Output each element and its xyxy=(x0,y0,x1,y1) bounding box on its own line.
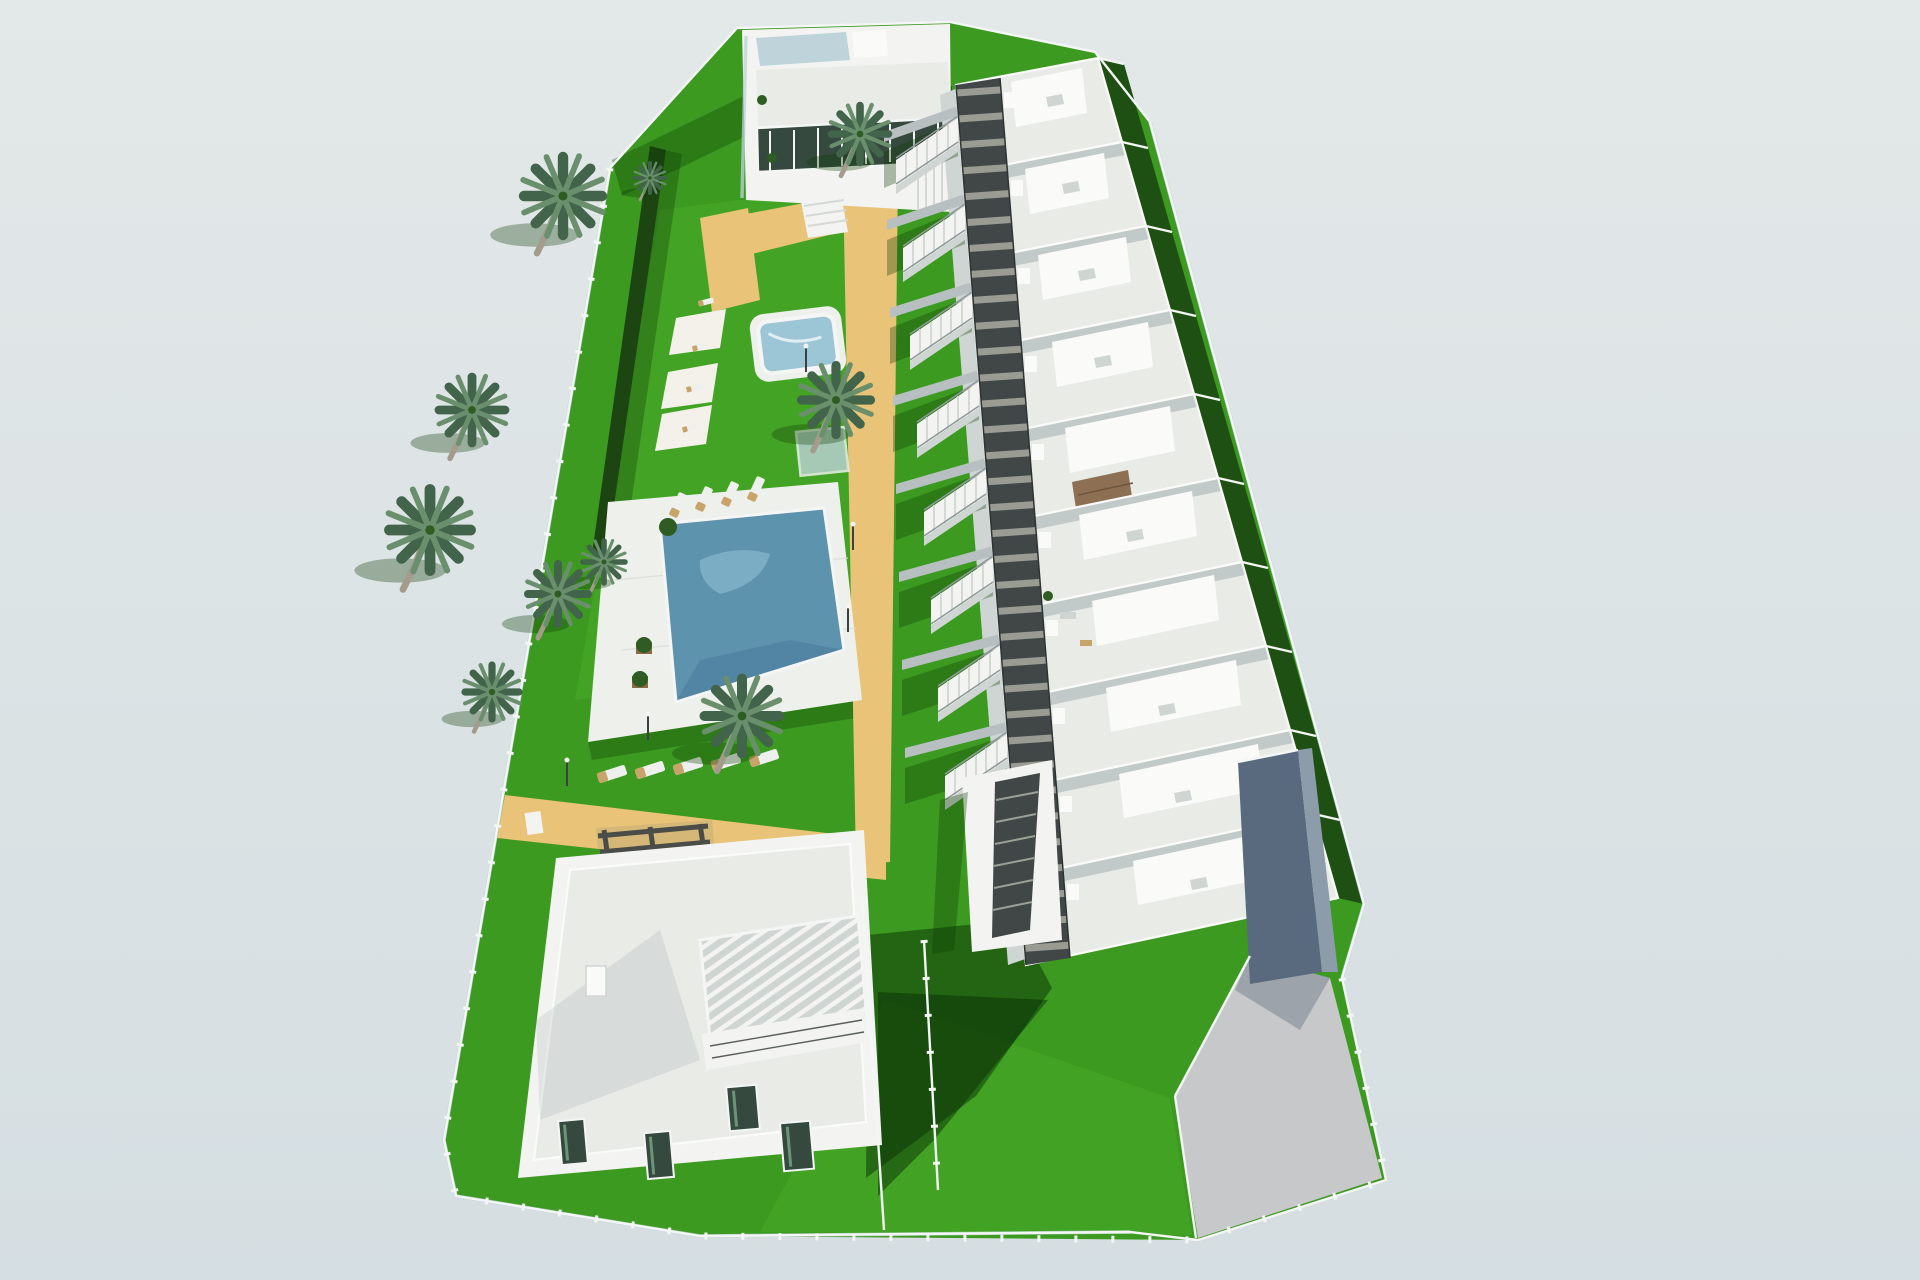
roof-access-box xyxy=(586,966,606,996)
stair-exit-box xyxy=(1018,268,1030,284)
terrace-plant xyxy=(1043,591,1053,601)
stair-exit-box xyxy=(1004,92,1016,108)
planter-plant xyxy=(636,637,652,653)
window xyxy=(558,1119,588,1165)
stair-exit-box xyxy=(1046,620,1058,636)
window xyxy=(726,1085,760,1131)
window xyxy=(644,1131,674,1179)
stair-exit-box xyxy=(1039,532,1051,548)
kids-pool-water xyxy=(757,314,839,375)
clubhouse-entry-steps xyxy=(800,190,848,238)
terrace-table xyxy=(1060,612,1076,619)
render-canvas xyxy=(0,0,1920,1280)
terrace-plant xyxy=(767,153,777,163)
stair-exit-box xyxy=(1053,708,1065,724)
stair-exit-box xyxy=(1060,796,1072,812)
clubhouse-roof-deck xyxy=(852,30,888,58)
corner-plant xyxy=(659,518,677,536)
stair-exit-box xyxy=(1032,444,1044,460)
stair-exit-box xyxy=(1067,884,1079,900)
clubhouse-glass-roof xyxy=(756,32,850,66)
terrace-lounger xyxy=(1080,640,1092,646)
window xyxy=(780,1121,814,1171)
terrace-plant xyxy=(757,95,767,105)
stair-exit-box xyxy=(1025,356,1037,372)
architectural-render xyxy=(0,0,1920,1280)
planter-plant xyxy=(632,671,648,687)
villa-building xyxy=(518,820,882,1179)
gate-pillar xyxy=(525,811,544,835)
stair-exit-box xyxy=(1011,180,1023,196)
